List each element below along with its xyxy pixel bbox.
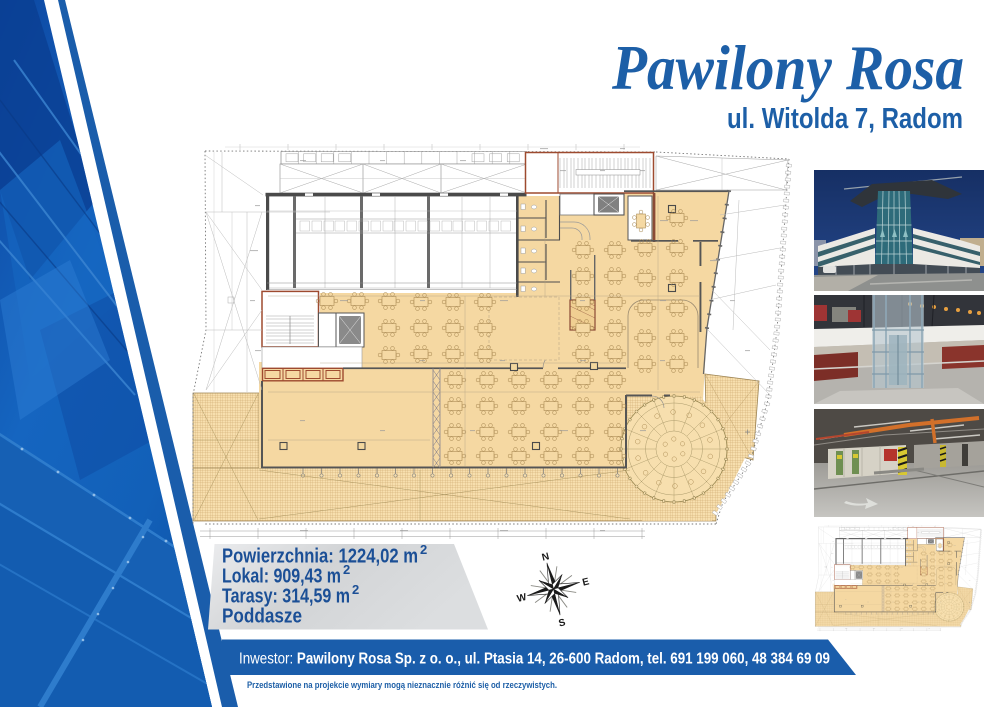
svg-text:W: W: [516, 592, 528, 605]
svg-text:Przedstawione na projekcie wym: Przedstawione na projekcie wymiary mogą …: [247, 680, 557, 690]
svg-text:2: 2: [352, 582, 359, 597]
svg-text:2: 2: [420, 542, 427, 557]
svg-text:S: S: [558, 617, 567, 629]
svg-text:E: E: [581, 576, 590, 588]
svg-text:Pawilony Rosa: Pawilony Rosa: [611, 32, 964, 103]
svg-text:2: 2: [343, 562, 350, 577]
svg-text:Inwestor: Pawilony Rosa Sp. z: Inwestor: Pawilony Rosa Sp. z o. o., ul.…: [239, 651, 830, 668]
svg-text:ul. Witolda 7, Radom: ul. Witolda 7, Radom: [727, 103, 963, 135]
svg-text:Poddasze: Poddasze: [222, 605, 302, 628]
svg-text:N: N: [541, 551, 551, 563]
